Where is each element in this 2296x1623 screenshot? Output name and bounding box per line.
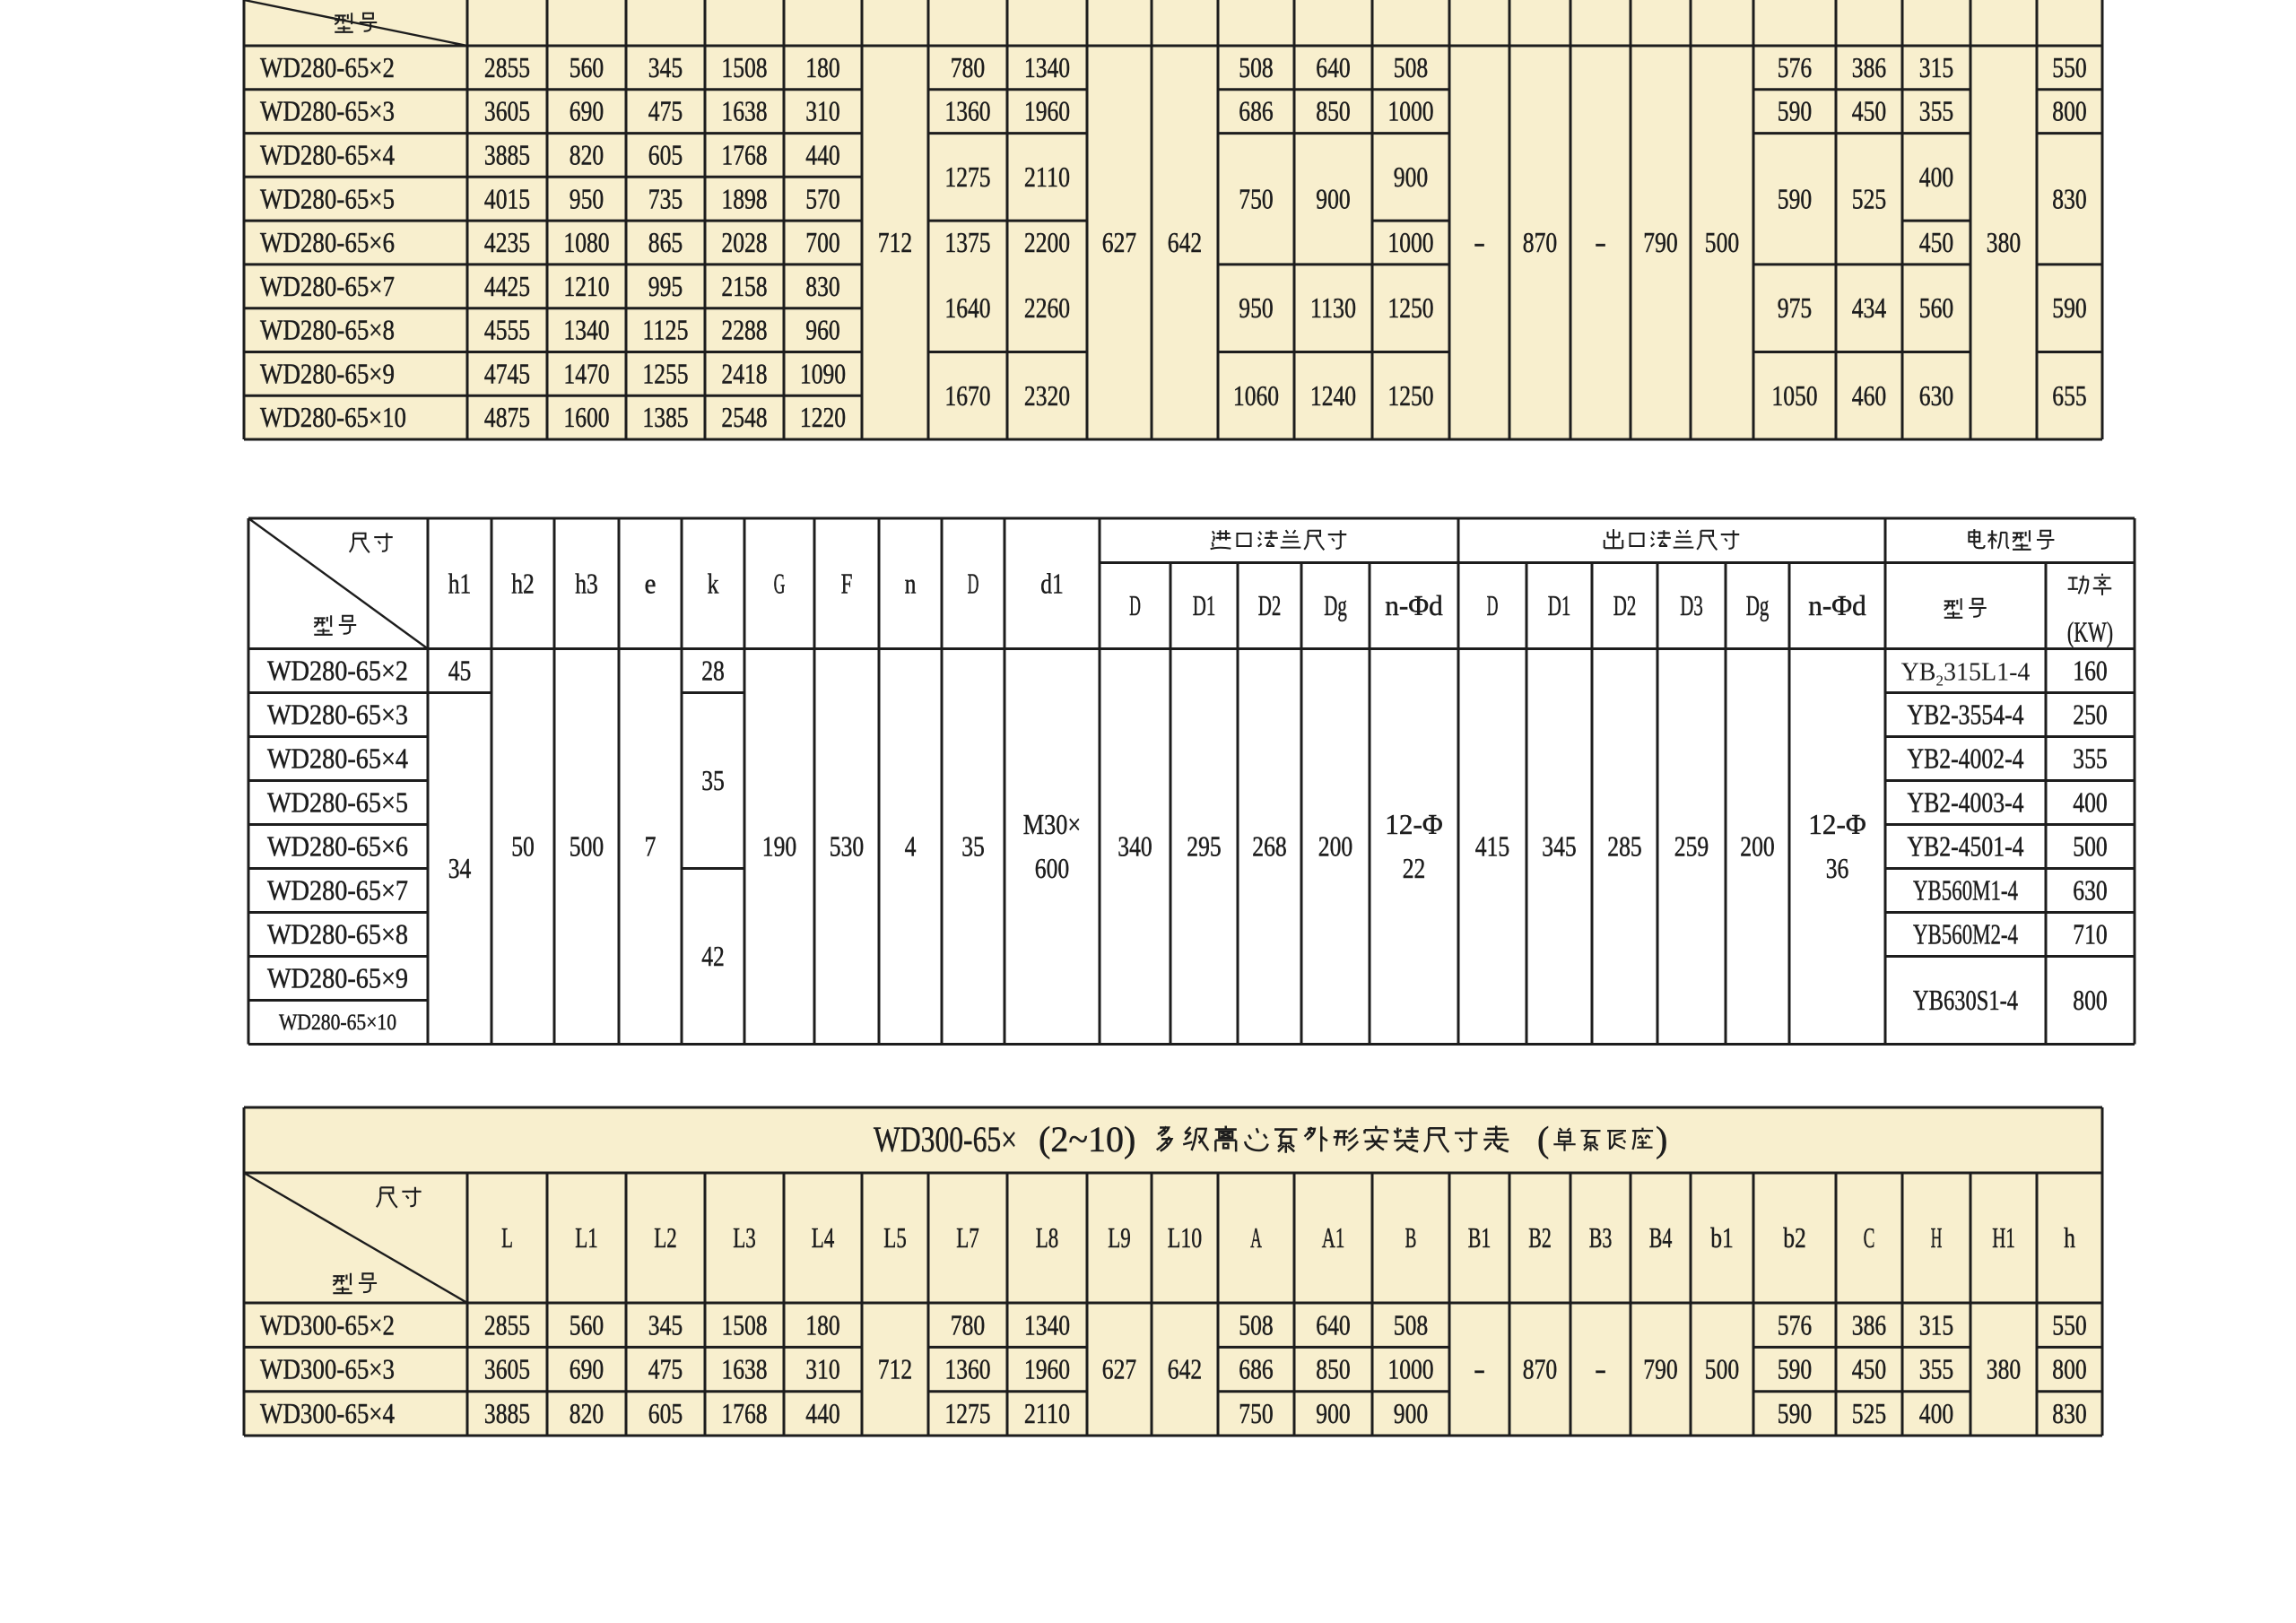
svg-text:B: B (1405, 1221, 1417, 1254)
svg-text:4745: 4745 (484, 357, 530, 389)
svg-text:345: 345 (648, 1308, 683, 1341)
svg-text:870: 870 (1523, 1353, 1557, 1385)
svg-text:1898: 1898 (721, 182, 767, 214)
svg-text:3885: 3885 (484, 139, 530, 171)
svg-text:WD280-65×5: WD280-65×5 (260, 182, 395, 214)
svg-text:1508: 1508 (721, 51, 767, 83)
svg-text:605: 605 (648, 139, 683, 171)
svg-text:508: 508 (1394, 51, 1428, 83)
svg-text:2320: 2320 (1024, 379, 1070, 412)
svg-text:400: 400 (2073, 786, 2107, 819)
svg-text:750: 750 (1239, 182, 1273, 214)
svg-text:D1: D1 (1193, 589, 1216, 621)
svg-text:450: 450 (1852, 1353, 1886, 1385)
svg-text:655: 655 (2052, 379, 2086, 412)
svg-text:2028: 2028 (721, 226, 767, 258)
svg-text:D2: D2 (1613, 589, 1637, 621)
svg-text:1768: 1768 (721, 1397, 767, 1429)
svg-text:508: 508 (1239, 1308, 1273, 1341)
svg-text:310: 310 (805, 1353, 839, 1385)
svg-text:h: h (2064, 1221, 2075, 1254)
svg-text:865: 865 (648, 226, 683, 258)
svg-text:WD280-65×3: WD280-65×3 (260, 95, 395, 127)
svg-text:1240: 1240 (1310, 379, 1356, 412)
svg-text:WD300-65×4: WD300-65×4 (260, 1397, 395, 1429)
svg-text:960: 960 (805, 314, 839, 346)
svg-text:550: 550 (2052, 1308, 2086, 1341)
svg-text:4425: 4425 (484, 270, 530, 302)
svg-text:1080: 1080 (563, 226, 609, 258)
svg-text:830: 830 (2052, 182, 2086, 214)
svg-text:WD300-65×: WD300-65× (874, 1119, 1017, 1159)
svg-text:M30×: M30× (1023, 808, 1081, 840)
svg-text:D: D (1487, 589, 1499, 621)
svg-text:42: 42 (701, 940, 725, 972)
svg-text:1360: 1360 (944, 95, 990, 127)
svg-text:950: 950 (1239, 291, 1273, 324)
svg-text:1360: 1360 (944, 1353, 990, 1385)
svg-text:900: 900 (1394, 1397, 1428, 1429)
svg-text:690: 690 (570, 95, 604, 127)
svg-text:686: 686 (1239, 1353, 1273, 1385)
svg-text:340: 340 (1118, 830, 1152, 863)
svg-text:995: 995 (648, 270, 683, 302)
svg-text:H1: H1 (1992, 1221, 2015, 1254)
svg-text:900: 900 (1394, 161, 1428, 193)
svg-text:790: 790 (1643, 226, 1677, 258)
svg-text:1090: 1090 (800, 357, 846, 389)
svg-text:1385: 1385 (642, 401, 688, 433)
svg-text:355: 355 (2073, 742, 2107, 775)
svg-text:3605: 3605 (484, 95, 530, 127)
svg-text:525: 525 (1852, 1397, 1886, 1429)
svg-text:700: 700 (805, 226, 839, 258)
svg-text:2418: 2418 (721, 357, 767, 389)
svg-text:k: k (708, 567, 719, 599)
svg-text:200: 200 (1740, 830, 1774, 863)
svg-text:WD280-65×4: WD280-65×4 (260, 139, 395, 171)
svg-text:D3: D3 (1680, 589, 1703, 621)
svg-text:180: 180 (805, 1308, 839, 1341)
svg-text:800: 800 (2073, 984, 2107, 1016)
svg-text:b1: b1 (1710, 1221, 1734, 1254)
svg-text:L10: L10 (1168, 1221, 1202, 1254)
svg-text:1768: 1768 (721, 139, 767, 171)
svg-text:380: 380 (1987, 1353, 2021, 1385)
svg-text:750: 750 (1239, 1397, 1273, 1429)
svg-text:4555: 4555 (484, 314, 530, 346)
svg-text:1638: 1638 (721, 1353, 767, 1385)
svg-text:D1: D1 (1548, 589, 1571, 621)
svg-text:1220: 1220 (800, 401, 846, 433)
svg-text:2200: 2200 (1024, 226, 1070, 258)
svg-text:2855: 2855 (484, 1308, 530, 1341)
svg-text:345: 345 (1542, 830, 1576, 863)
svg-text:450: 450 (1919, 226, 1953, 258)
svg-text:735: 735 (648, 182, 683, 214)
svg-text:530: 530 (830, 830, 864, 863)
svg-text:L5: L5 (883, 1221, 907, 1254)
svg-text:160: 160 (2073, 655, 2107, 687)
svg-text:1638: 1638 (721, 95, 767, 127)
svg-text:L: L (501, 1221, 513, 1254)
svg-text:975: 975 (1778, 291, 1812, 324)
svg-text:1275: 1275 (944, 1397, 990, 1429)
svg-text:180: 180 (805, 51, 839, 83)
svg-text:A1: A1 (1322, 1221, 1345, 1254)
svg-text:B1: B1 (1468, 1221, 1492, 1254)
svg-text:h1: h1 (448, 567, 472, 599)
svg-text:686: 686 (1239, 95, 1273, 127)
svg-text:627: 627 (1102, 226, 1136, 258)
svg-text:12-Φ: 12-Φ (1808, 808, 1865, 840)
svg-text:460: 460 (1852, 379, 1886, 412)
svg-text:B4: B4 (1649, 1221, 1673, 1254)
svg-text:34: 34 (448, 852, 472, 884)
svg-text:1670: 1670 (944, 379, 990, 412)
svg-text:475: 475 (648, 1353, 683, 1385)
svg-text:(2~10): (2~10) (1039, 1119, 1135, 1159)
svg-text:h3: h3 (575, 567, 598, 599)
svg-text:712: 712 (878, 1353, 912, 1385)
svg-text:WD300-65×2: WD300-65×2 (260, 1308, 395, 1341)
svg-text:1050: 1050 (1771, 379, 1817, 412)
svg-text:830: 830 (2052, 1397, 2086, 1429)
svg-text:n-Φd: n-Φd (1385, 589, 1442, 621)
svg-text:820: 820 (570, 139, 604, 171)
svg-text:1600: 1600 (563, 401, 609, 433)
svg-text:h2: h2 (511, 567, 535, 599)
svg-text:WD280-65×9: WD280-65×9 (260, 357, 395, 389)
svg-text:590: 590 (1778, 95, 1812, 127)
svg-text:YB2315L1-4: YB2315L1-4 (1901, 659, 2031, 690)
svg-text:310: 310 (805, 95, 839, 127)
svg-text:WD280-65×6: WD280-65×6 (267, 830, 408, 863)
svg-text:1340: 1340 (1024, 51, 1070, 83)
svg-text:H: H (1931, 1221, 1943, 1254)
svg-text:WD280-65×2: WD280-65×2 (260, 51, 395, 83)
svg-text:250: 250 (2073, 699, 2107, 731)
svg-text:508: 508 (1239, 51, 1273, 83)
svg-text:YB630S1-4: YB630S1-4 (1913, 984, 2018, 1016)
svg-text:WD280-65×9: WD280-65×9 (267, 962, 408, 994)
svg-text:800: 800 (2052, 1353, 2086, 1385)
svg-text:259: 259 (1674, 830, 1709, 863)
svg-text:1640: 1640 (944, 291, 990, 324)
svg-text:-: - (1595, 226, 1606, 258)
svg-text:B3: B3 (1589, 1221, 1613, 1254)
svg-text:A: A (1250, 1221, 1262, 1254)
svg-text:1340: 1340 (563, 314, 609, 346)
svg-text:400: 400 (1919, 1397, 1953, 1429)
svg-text:570: 570 (805, 182, 839, 214)
svg-text:850: 850 (1316, 95, 1350, 127)
svg-text:G: G (774, 567, 786, 599)
svg-text:780: 780 (951, 1308, 985, 1341)
svg-text:640: 640 (1316, 1308, 1350, 1341)
svg-text:1960: 1960 (1024, 95, 1070, 127)
svg-text:2855: 2855 (484, 51, 530, 83)
svg-text:500: 500 (570, 830, 604, 863)
svg-text:YB560M1-4: YB560M1-4 (1913, 874, 2018, 907)
svg-text:1275: 1275 (944, 161, 990, 193)
svg-text:WD300-65×3: WD300-65×3 (260, 1353, 395, 1385)
svg-text:YB560M2-4: YB560M2-4 (1913, 918, 2018, 950)
svg-text:640: 640 (1316, 51, 1350, 83)
svg-text:590: 590 (2052, 291, 2086, 324)
svg-text:28: 28 (701, 655, 725, 687)
svg-text:WD280-65×8: WD280-65×8 (267, 918, 408, 950)
svg-text:475: 475 (648, 95, 683, 127)
svg-text:440: 440 (805, 1397, 839, 1429)
svg-text:1000: 1000 (1387, 226, 1433, 258)
svg-text:F: F (841, 567, 853, 599)
svg-text:L2: L2 (654, 1221, 677, 1254)
svg-text:L7: L7 (956, 1221, 979, 1254)
svg-text:345: 345 (648, 51, 683, 83)
svg-text:630: 630 (1919, 379, 1953, 412)
svg-text:-: - (1474, 1353, 1485, 1385)
svg-text:4015: 4015 (484, 182, 530, 214)
svg-text:YB2-4002-4: YB2-4002-4 (1908, 742, 2024, 775)
svg-text:Dg: Dg (1324, 589, 1347, 621)
svg-text:35: 35 (961, 830, 985, 863)
svg-text:355: 355 (1919, 1353, 1953, 1385)
svg-text:12-Φ: 12-Φ (1385, 808, 1442, 840)
svg-text:642: 642 (1168, 226, 1202, 258)
svg-text:560: 560 (570, 1308, 604, 1341)
svg-text:190: 190 (762, 830, 796, 863)
svg-text:-: - (1595, 1353, 1606, 1385)
svg-text:400: 400 (1919, 161, 1953, 193)
svg-text:550: 550 (2052, 51, 2086, 83)
svg-text:4235: 4235 (484, 226, 530, 258)
svg-text:790: 790 (1643, 1353, 1677, 1385)
svg-text:1000: 1000 (1387, 95, 1433, 127)
svg-text:268: 268 (1252, 830, 1286, 863)
svg-text:YB2-4003-4: YB2-4003-4 (1908, 786, 2024, 819)
svg-text:1250: 1250 (1387, 291, 1433, 324)
svg-text:830: 830 (805, 270, 839, 302)
svg-text:870: 870 (1523, 226, 1557, 258)
svg-text:295: 295 (1187, 830, 1221, 863)
svg-text:36: 36 (1826, 852, 1849, 884)
svg-text:315: 315 (1919, 51, 1953, 83)
svg-text:2110: 2110 (1024, 1397, 1070, 1429)
svg-text:d1: d1 (1040, 567, 1064, 599)
svg-text:590: 590 (1778, 1397, 1812, 1429)
svg-text:50: 50 (511, 830, 535, 863)
svg-text:1060: 1060 (1233, 379, 1279, 412)
svg-text:L8: L8 (1036, 1221, 1059, 1254)
svg-text:590: 590 (1778, 1353, 1812, 1385)
svg-text:WD280-65×3: WD280-65×3 (267, 699, 408, 731)
svg-text:900: 900 (1316, 1397, 1350, 1429)
svg-text:576: 576 (1778, 1308, 1812, 1341)
svg-text:WD280-65×7: WD280-65×7 (260, 270, 395, 302)
svg-text:1375: 1375 (944, 226, 990, 258)
svg-text:3885: 3885 (484, 1397, 530, 1429)
svg-text:560: 560 (570, 51, 604, 83)
svg-text:525: 525 (1852, 182, 1886, 214)
svg-text:35: 35 (701, 764, 725, 796)
svg-text:WD280-65×5: WD280-65×5 (267, 786, 408, 819)
svg-text:2548: 2548 (721, 401, 767, 433)
svg-text:315: 315 (1919, 1308, 1953, 1341)
svg-text:712: 712 (878, 226, 912, 258)
svg-text:B2: B2 (1528, 1221, 1552, 1254)
svg-text:1130: 1130 (1310, 291, 1356, 324)
svg-text:-: - (1474, 226, 1485, 258)
svg-text:4: 4 (905, 830, 917, 863)
svg-text:2260: 2260 (1024, 291, 1070, 324)
svg-text:L4: L4 (812, 1221, 835, 1254)
svg-text:n-Φd: n-Φd (1808, 589, 1865, 621)
svg-text:355: 355 (1919, 95, 1953, 127)
svg-text:1960: 1960 (1024, 1353, 1070, 1385)
svg-text:22: 22 (1403, 852, 1426, 884)
svg-text:b2: b2 (1783, 1221, 1806, 1254)
svg-text:YB2-4501-4: YB2-4501-4 (1908, 830, 2024, 863)
svg-text:627: 627 (1102, 1353, 1136, 1385)
svg-text:D: D (968, 567, 979, 599)
svg-text:642: 642 (1168, 1353, 1202, 1385)
svg-text:1340: 1340 (1024, 1308, 1070, 1341)
svg-text:WD280-65×2: WD280-65×2 (267, 655, 408, 687)
svg-text:3605: 3605 (484, 1353, 530, 1385)
svg-text:590: 590 (1778, 182, 1812, 214)
svg-text:2158: 2158 (721, 270, 767, 302)
svg-text:WD280-65×10: WD280-65×10 (260, 401, 406, 433)
svg-text:): ) (1656, 1119, 1667, 1159)
svg-text:386: 386 (1852, 1308, 1886, 1341)
svg-text:1000: 1000 (1387, 1353, 1433, 1385)
svg-text:WD280-65×10: WD280-65×10 (279, 1011, 396, 1035)
svg-text:L9: L9 (1108, 1221, 1131, 1254)
svg-text:WD280-65×8: WD280-65×8 (260, 314, 395, 346)
svg-text:500: 500 (1705, 1353, 1739, 1385)
svg-text:45: 45 (448, 655, 472, 687)
svg-text:415: 415 (1475, 830, 1509, 863)
svg-text:605: 605 (648, 1397, 683, 1429)
svg-text:440: 440 (805, 139, 839, 171)
svg-text:500: 500 (2073, 830, 2107, 863)
svg-text:690: 690 (570, 1353, 604, 1385)
svg-text:820: 820 (570, 1397, 604, 1429)
svg-text:(KW): (KW) (2067, 616, 2113, 648)
svg-text:950: 950 (570, 182, 604, 214)
svg-text:386: 386 (1852, 51, 1886, 83)
svg-text:1255: 1255 (642, 357, 688, 389)
svg-text:D2: D2 (1258, 589, 1282, 621)
svg-text:630: 630 (2073, 874, 2107, 907)
svg-text:600: 600 (1035, 852, 1069, 884)
svg-text:1125: 1125 (642, 314, 688, 346)
svg-text:850: 850 (1316, 1353, 1350, 1385)
svg-text:800: 800 (2052, 95, 2086, 127)
svg-text:7: 7 (645, 830, 657, 863)
svg-text:380: 380 (1987, 226, 2021, 258)
svg-text:500: 500 (1705, 226, 1739, 258)
svg-text:900: 900 (1316, 182, 1350, 214)
svg-text:1508: 1508 (721, 1308, 767, 1341)
svg-text:YB2-3554-4: YB2-3554-4 (1908, 699, 2024, 731)
svg-text:1210: 1210 (563, 270, 609, 302)
svg-text:434: 434 (1852, 291, 1886, 324)
svg-text:1250: 1250 (1387, 379, 1433, 412)
svg-text:C: C (1864, 1221, 1875, 1254)
svg-text:WD280-65×6: WD280-65×6 (260, 226, 395, 258)
svg-text:780: 780 (951, 51, 985, 83)
svg-text:WD280-65×7: WD280-65×7 (267, 874, 408, 907)
svg-text:e: e (645, 567, 657, 599)
svg-text:n: n (905, 567, 917, 599)
svg-text:285: 285 (1607, 830, 1641, 863)
svg-text:L3: L3 (733, 1221, 756, 1254)
svg-text:(: ( (1537, 1119, 1549, 1159)
svg-text:200: 200 (1318, 830, 1352, 863)
svg-text:1470: 1470 (563, 357, 609, 389)
svg-text:Dg: Dg (1746, 589, 1770, 621)
svg-text:576: 576 (1778, 51, 1812, 83)
svg-text:2288: 2288 (721, 314, 767, 346)
svg-text:L1: L1 (575, 1221, 598, 1254)
svg-text:4875: 4875 (484, 401, 530, 433)
svg-text:2110: 2110 (1024, 161, 1070, 193)
svg-text:710: 710 (2073, 918, 2107, 950)
svg-text:508: 508 (1394, 1308, 1428, 1341)
svg-text:D: D (1129, 589, 1141, 621)
svg-text:WD280-65×4: WD280-65×4 (267, 742, 408, 775)
svg-text:560: 560 (1919, 291, 1953, 324)
svg-text:450: 450 (1852, 95, 1886, 127)
